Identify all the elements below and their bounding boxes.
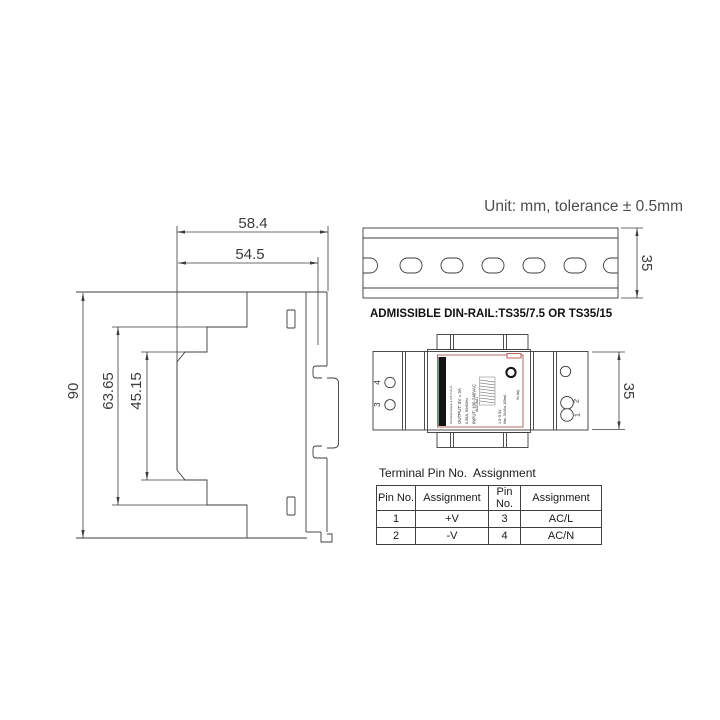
rail-hook-bottom xyxy=(313,446,327,458)
rail-slot-partial-right xyxy=(604,258,619,273)
terminal-label-4: 4 xyxy=(373,380,382,385)
brand-logo-hatch xyxy=(480,377,496,405)
table-header-cell: Pin No. xyxy=(377,486,416,511)
clip-bulge xyxy=(327,378,339,448)
pin-table-title: Terminal Pin No. Assignment xyxy=(379,466,602,480)
table-cell: AC/N xyxy=(521,528,602,545)
table-header-cell: Assignment xyxy=(521,486,602,511)
left-terminal-labels: 4 3 xyxy=(373,380,382,407)
label-vo-adj-text: Vo Adj. xyxy=(516,389,520,400)
rail-hook-top xyxy=(313,366,327,378)
side-view-dimensions xyxy=(83,226,328,538)
tolerance-note: Unit: mm, tolerance ± 0.5mm xyxy=(484,198,683,215)
dim-text-45-15: 45.15 xyxy=(128,372,145,410)
table-row: 1 +V 3 AC/L xyxy=(377,511,602,528)
label-load-range-text: Max. 3A Min. 100mA xyxy=(503,394,507,424)
terminal-label-1: 1 xyxy=(573,413,582,417)
label-brand-text: MEAN WELL xyxy=(475,396,479,412)
right-terminal-labels: 2 1 xyxy=(572,399,582,417)
table-cell: AC/L xyxy=(521,511,602,528)
terminal-hole-1 xyxy=(561,409,574,422)
dim-text-58-4: 58.4 xyxy=(238,215,267,232)
unit-tab-bottom-lines xyxy=(451,433,507,448)
table-cell: 4 xyxy=(489,528,521,545)
table-header-cell: Pin No. xyxy=(489,486,521,511)
table-row: 2 -V 4 AC/N xyxy=(377,528,602,545)
rail-slot-partial-left xyxy=(363,258,378,273)
side-vent-slot-bottom xyxy=(287,497,295,515)
terminal-label-2: 2 xyxy=(572,399,581,403)
label-red-box xyxy=(507,354,521,359)
side-step-profile xyxy=(177,292,247,538)
label-adjust-range-text: 4.5~5.5V xyxy=(498,409,502,424)
table-cell: +V xyxy=(416,511,489,528)
unit-tab-top-lines xyxy=(451,335,507,350)
unit-dim-text-35: 35 xyxy=(620,383,637,400)
terminal-screw-3 xyxy=(385,400,395,410)
terminal-screw-top-right xyxy=(560,366,570,376)
side-latch-tab xyxy=(321,532,332,542)
din-rail-caption: ADMISSIBLE DIN-RAIL:TS35/7.5 OR TS35/15 xyxy=(370,308,613,320)
rail-slot xyxy=(400,258,422,273)
table-cell: 1 xyxy=(377,511,416,528)
label-input-current-text: 0.55A, 50/60Hz xyxy=(465,398,469,424)
pin-assignment-block: Terminal Pin No. Assignment Pin No. Assi… xyxy=(376,466,602,545)
label-black-stripe xyxy=(439,357,447,426)
vo-adjust-potentiometer xyxy=(506,368,515,377)
terminal-screw-4 xyxy=(385,377,395,387)
rail-dim-text-35: 35 xyxy=(638,255,655,272)
mechanical-drawing: Unit: mm, tolerance ± 0.5mm xyxy=(0,0,720,720)
table-header-row: Pin No. Assignment Pin No. Assignment xyxy=(377,486,602,511)
mechanical-drawing-page: Unit: mm, tolerance ± 0.5mm xyxy=(0,0,720,720)
label-output-text: OUTPUT: 5V = 3A xyxy=(457,388,462,424)
pin-assignment-table: Pin No. Assignment Pin No. Assignment 1 … xyxy=(376,485,602,545)
label-torque-text: Terminal torque 4.4-5.3 Lb-in xyxy=(449,385,453,424)
table-cell: 2 xyxy=(377,528,416,545)
side-view-dim-texts: 58.4 54.5 90 63.65 45.15 xyxy=(65,215,268,410)
label-text-block: Terminal torque 4.4-5.3 Lb-in OUTPUT: 5V… xyxy=(449,384,520,424)
side-view: 58.4 54.5 90 63.65 45.15 xyxy=(65,215,339,542)
table-cell: 3 xyxy=(489,511,521,528)
rail-slot xyxy=(564,258,586,273)
dim-text-54-5: 54.5 xyxy=(235,246,264,263)
unit-top-view: Terminal torque 4.4-5.3 Lb-in OUTPUT: 5V… xyxy=(373,335,637,448)
side-vent-slot-top xyxy=(287,310,295,328)
dim-text-63-65: 63.65 xyxy=(100,372,117,410)
rail-slot xyxy=(441,258,463,273)
terminal-label-3: 3 xyxy=(373,402,382,407)
table-cell: -V xyxy=(416,528,489,545)
rail-outline xyxy=(363,228,618,298)
table-header-cell: Assignment xyxy=(416,486,489,511)
dim-text-90: 90 xyxy=(65,383,82,400)
din-rail-view: 35 ADMISSIBLE DIN-RAIL:TS35/7.5 OR TS35/… xyxy=(363,228,655,320)
rail-slot xyxy=(482,258,504,273)
rail-slot xyxy=(523,258,545,273)
